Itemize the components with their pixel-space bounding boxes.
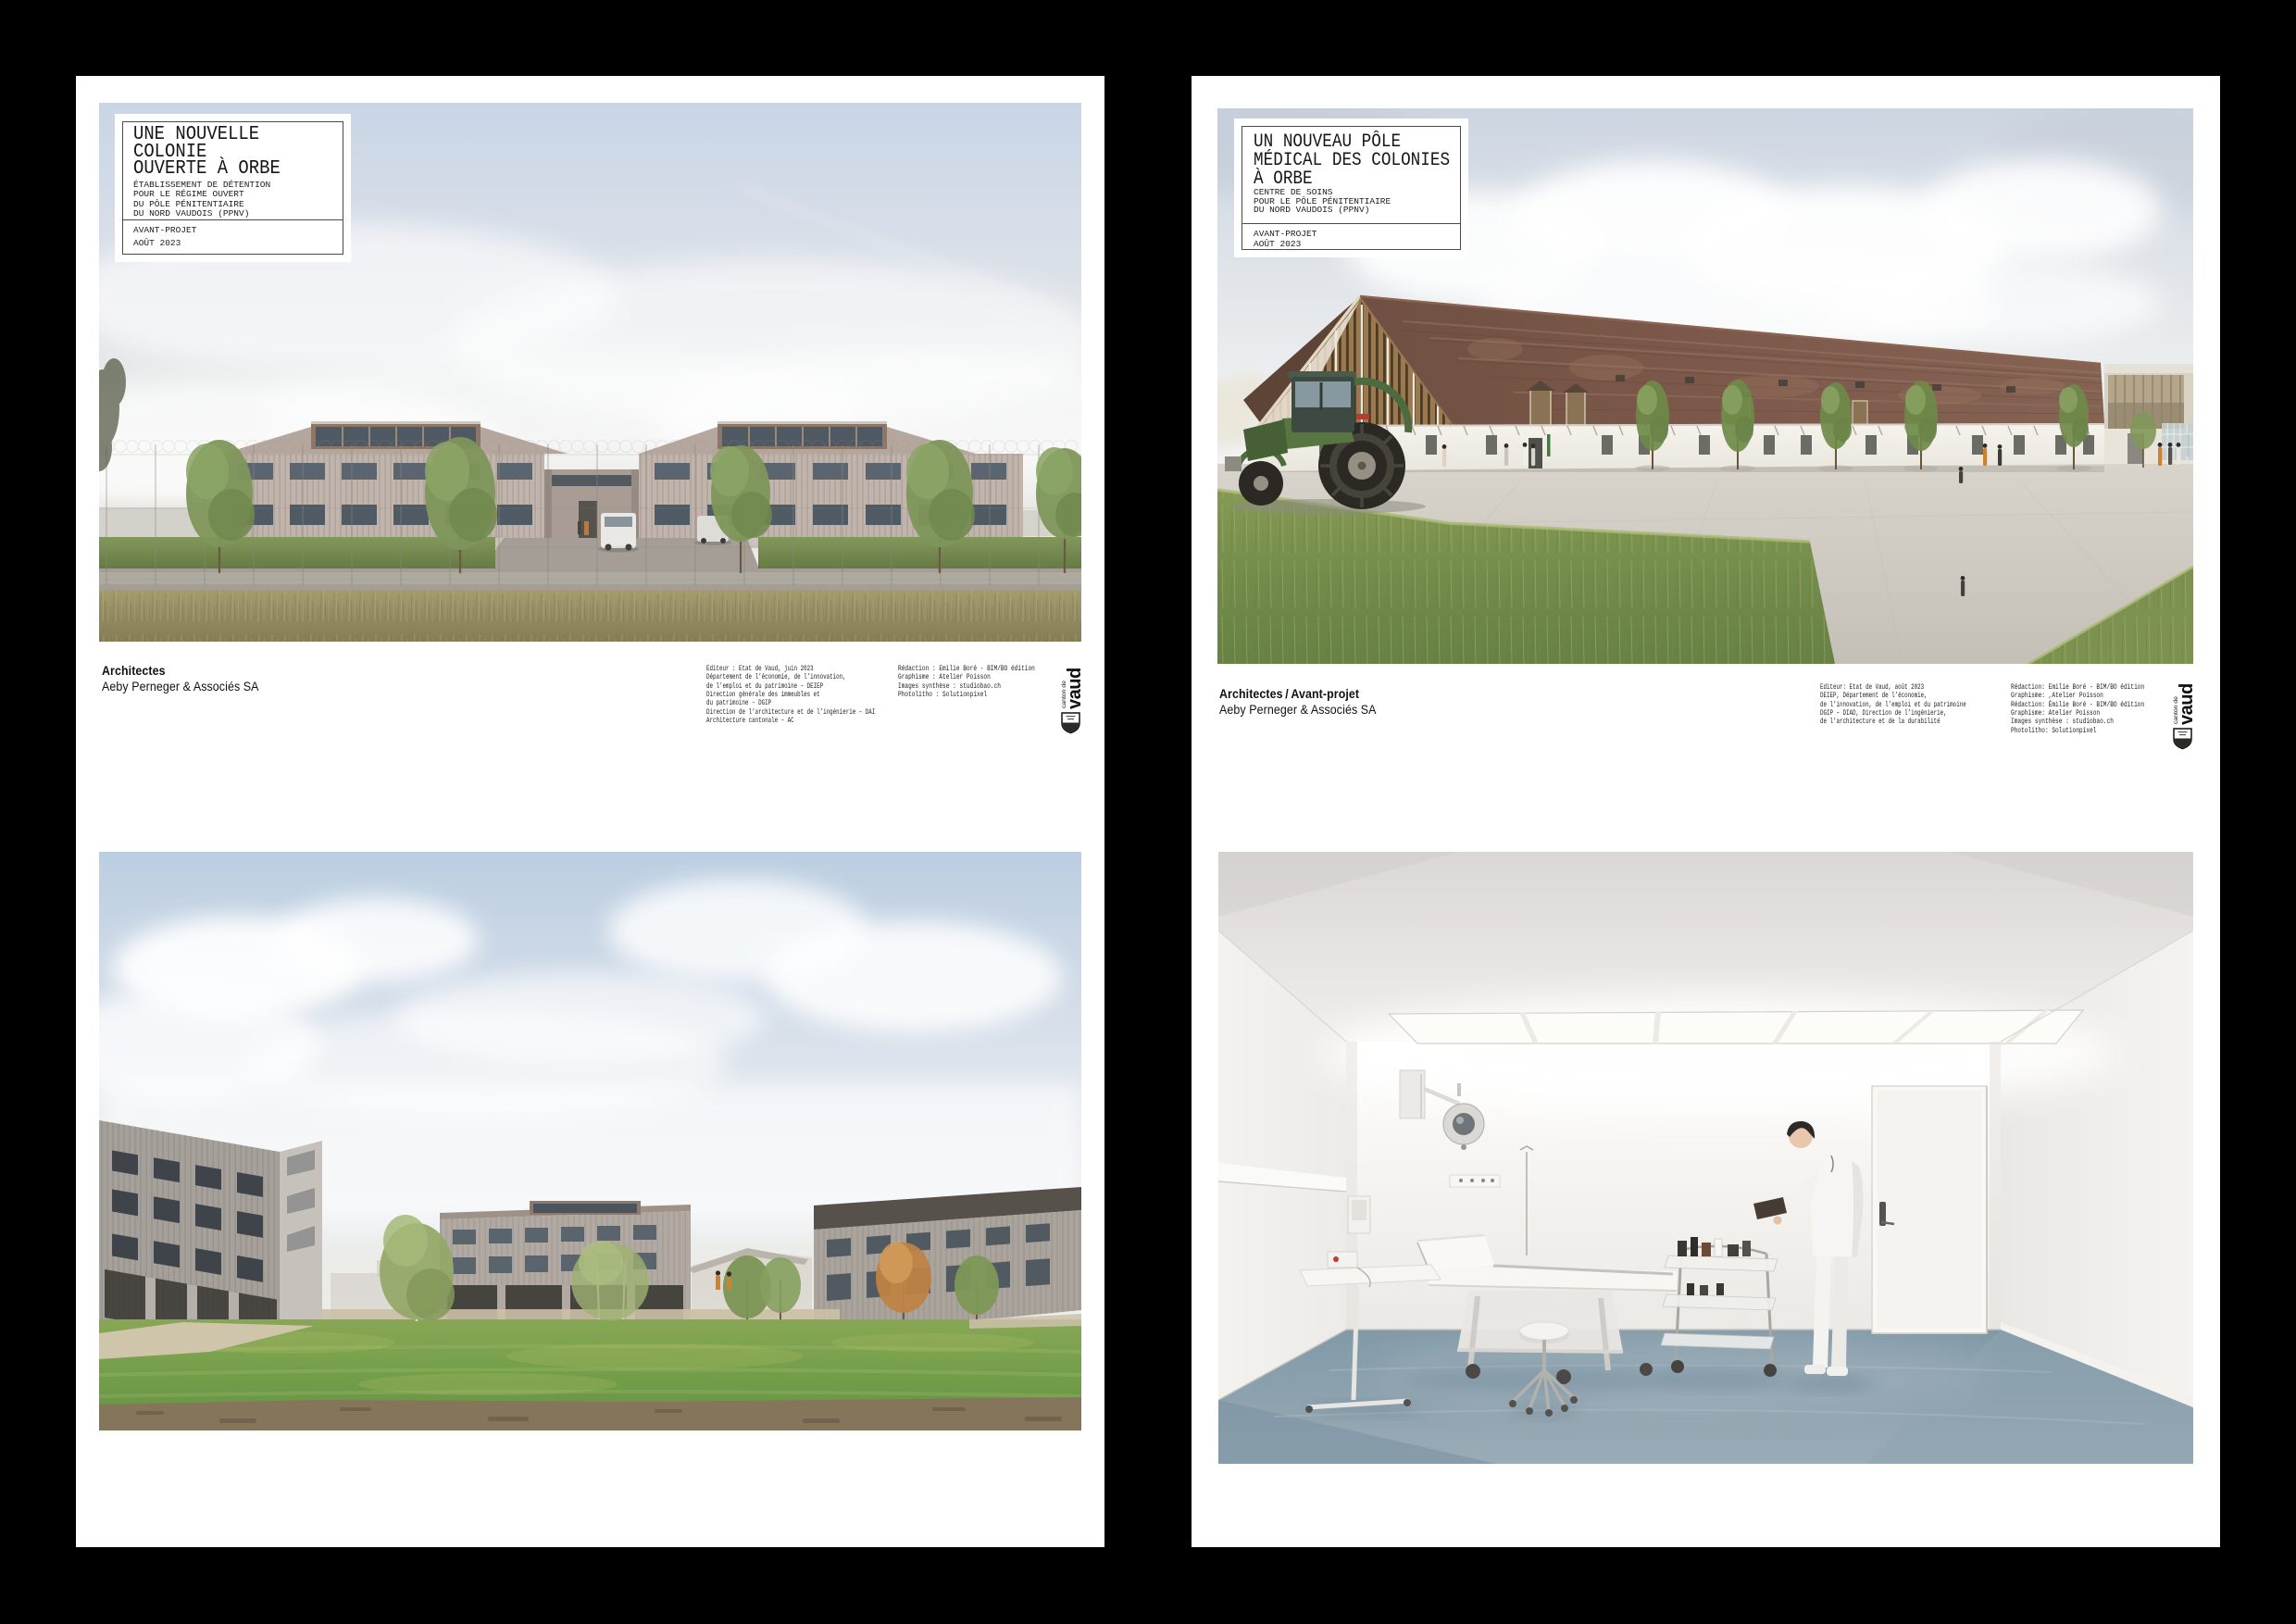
svg-text:canton de: canton de: [2173, 696, 2179, 724]
svg-text:canton de: canton de: [1061, 681, 1067, 708]
